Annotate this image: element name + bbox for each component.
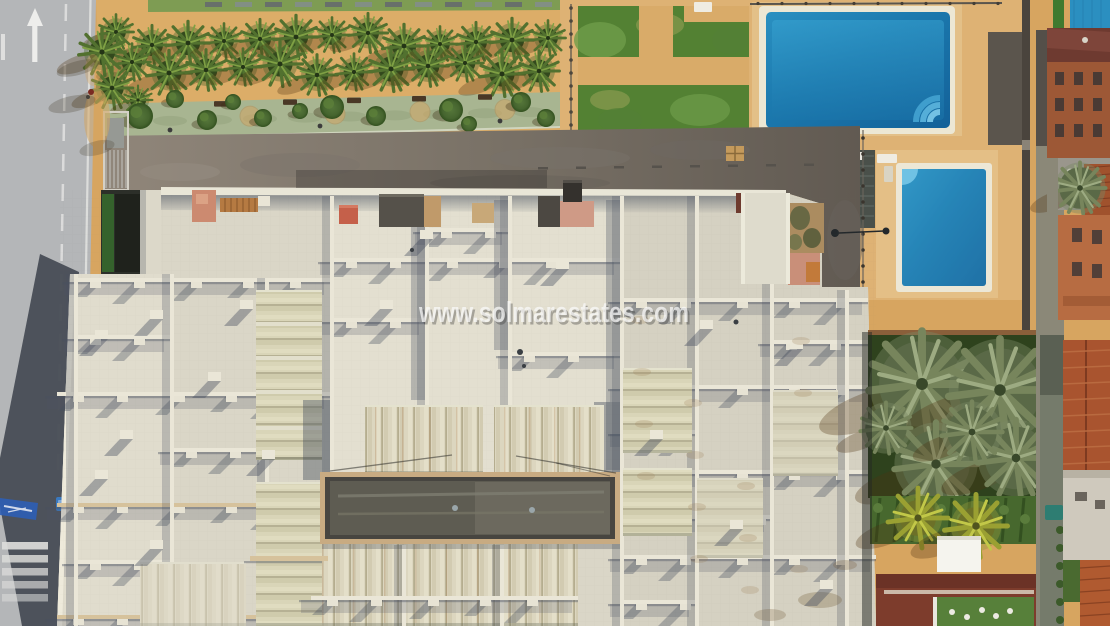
svg-text:www.solmarestates.com: www.solmarestates.com bbox=[418, 297, 689, 329]
